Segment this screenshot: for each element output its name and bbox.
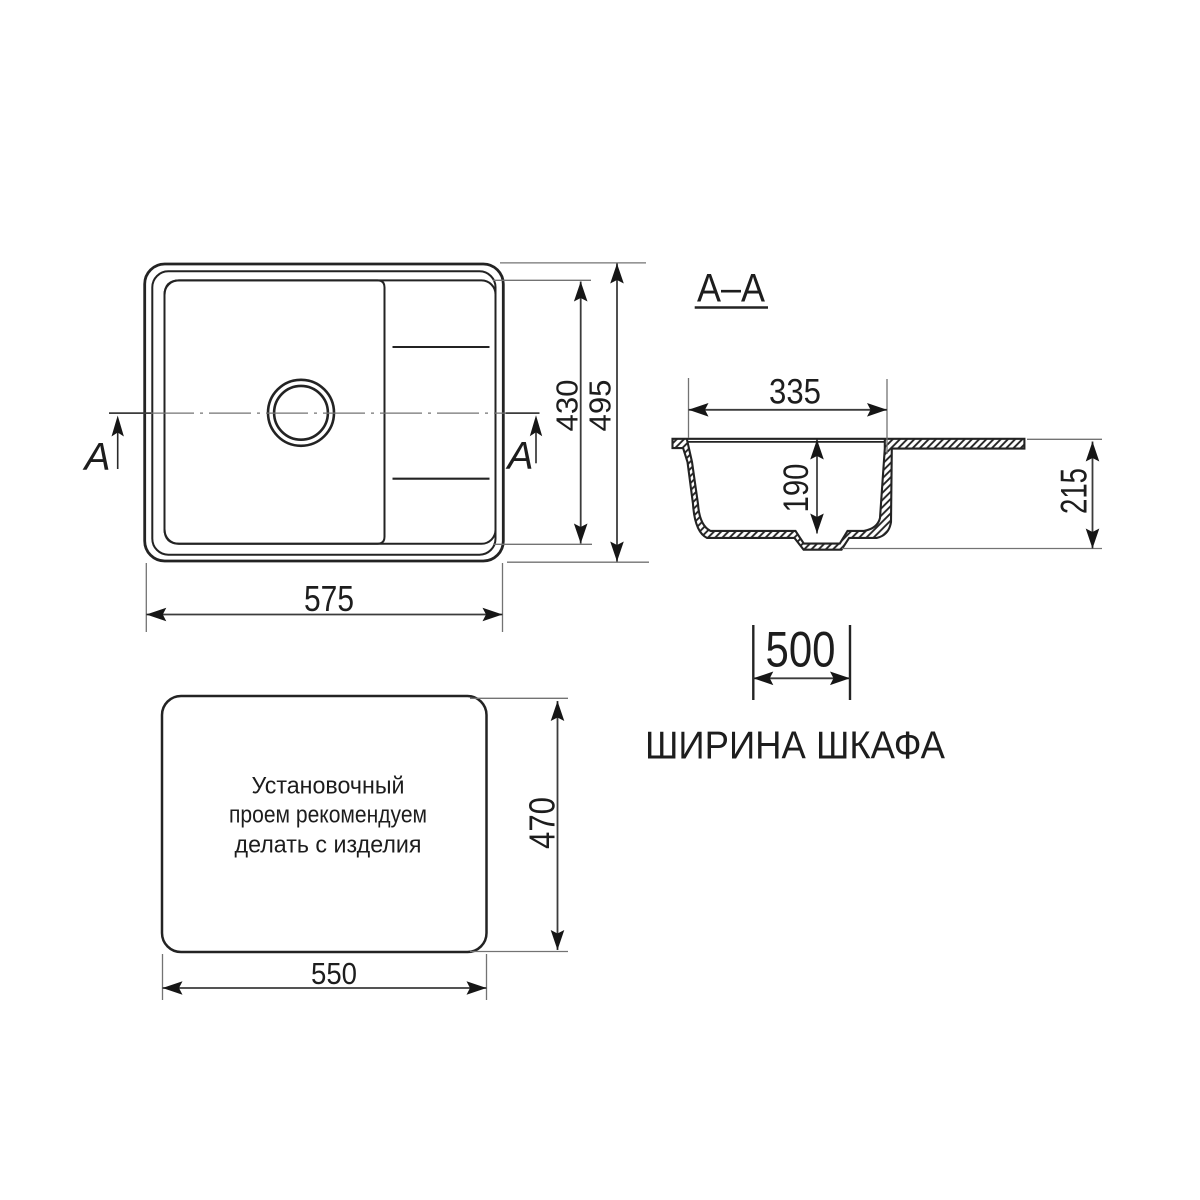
svg-text:335: 335 — [769, 373, 821, 412]
svg-text:470: 470 — [522, 797, 563, 849]
svg-text:190: 190 — [777, 464, 816, 513]
svg-text:делать с изделия: делать с изделия — [235, 832, 422, 859]
svg-text:A: A — [505, 435, 533, 478]
svg-text:575: 575 — [304, 578, 354, 619]
svg-text:ШИРИНА ШКАФА: ШИРИНА ШКАФА — [645, 725, 945, 768]
svg-text:Установочный: Установочный — [252, 772, 405, 799]
svg-text:550: 550 — [311, 956, 357, 991]
svg-text:215: 215 — [1054, 468, 1095, 514]
svg-text:A: A — [82, 436, 110, 479]
svg-text:495: 495 — [583, 380, 618, 432]
svg-text:A–A: A–A — [697, 267, 765, 311]
svg-text:500: 500 — [766, 622, 836, 678]
svg-text:проем рекомендуем: проем рекомендуем — [229, 802, 427, 829]
svg-text:430: 430 — [550, 380, 585, 432]
